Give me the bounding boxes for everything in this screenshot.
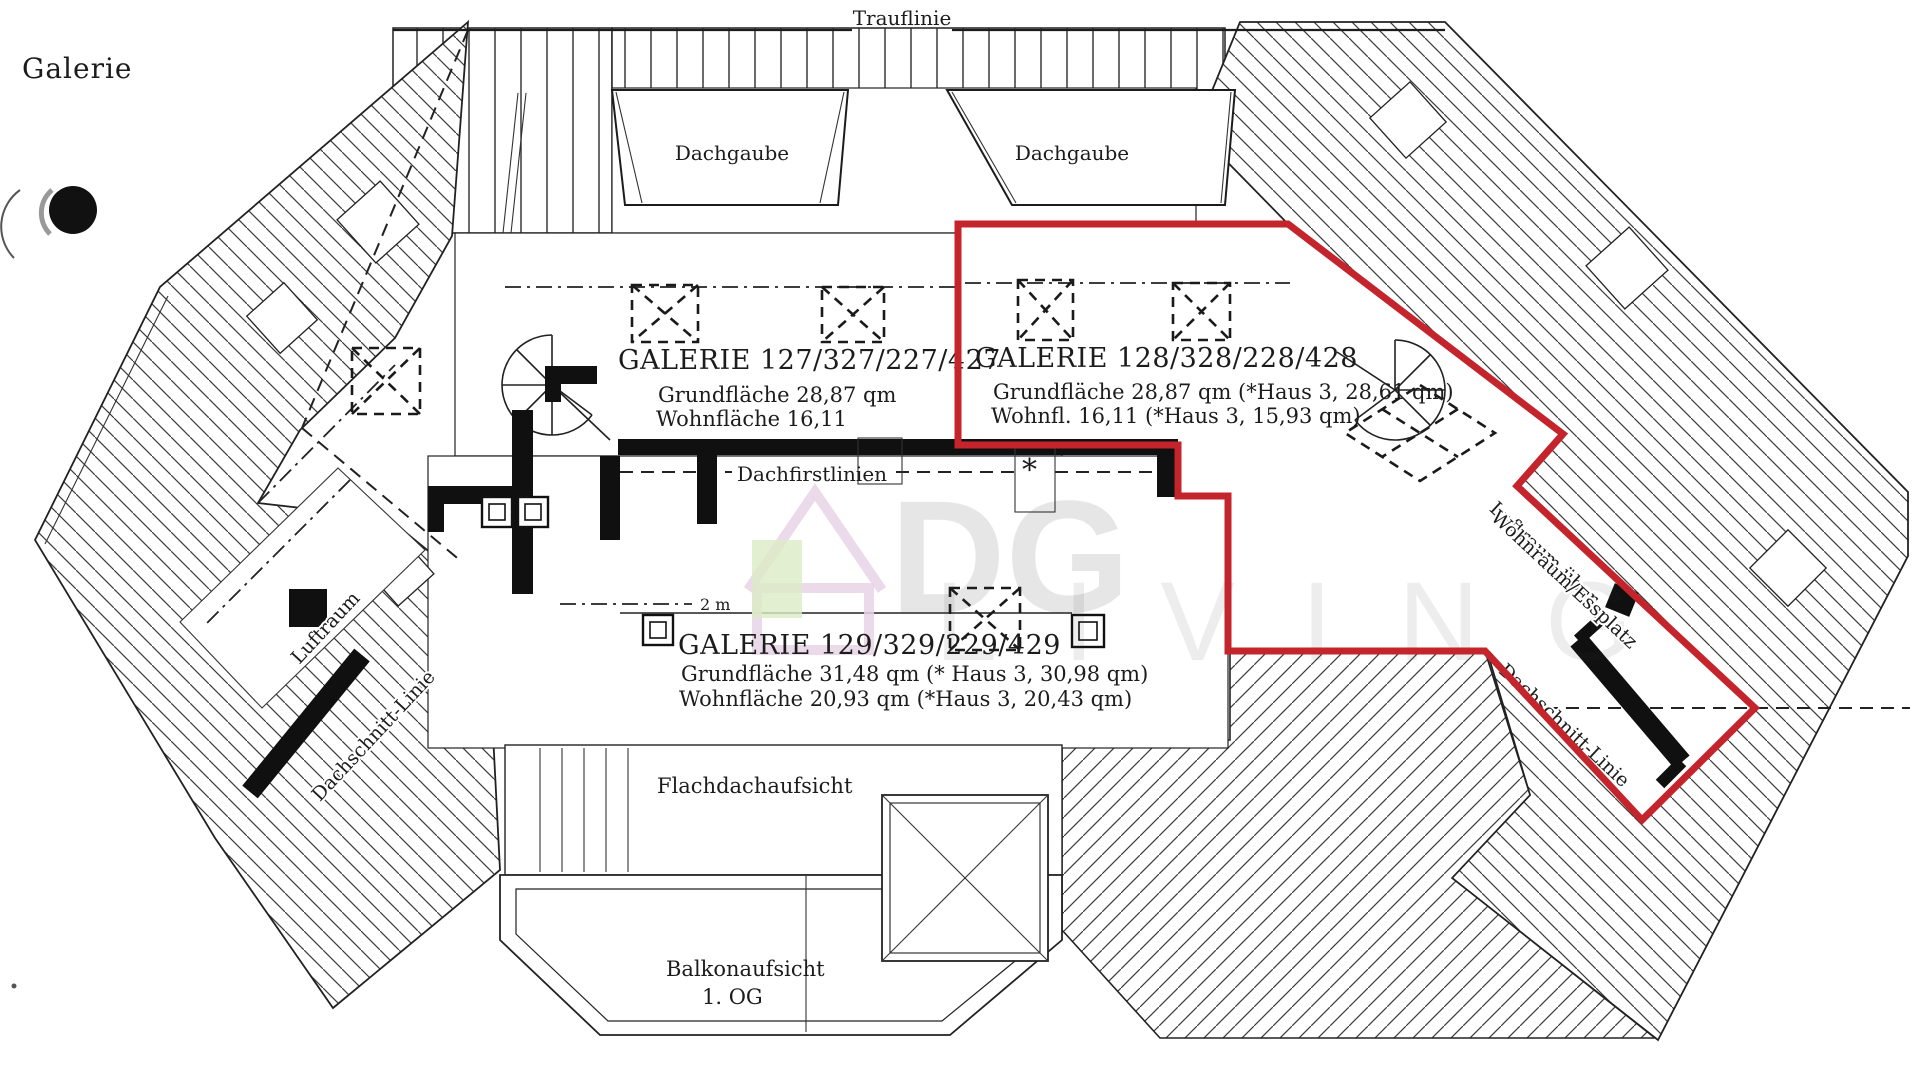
scale-label: 2 m	[700, 595, 730, 614]
floor-plan-svg: DG LIVING Galerie Trauflinie Dachgaube D…	[0, 0, 1920, 1067]
ridge-label: Dachfirstlinien	[737, 462, 887, 486]
balcony-label-line2: 1. OG	[702, 985, 763, 1009]
asterisk-mark: *	[1022, 453, 1037, 488]
post	[518, 497, 548, 527]
unit-127-name: GALERIE 127/327/227/427	[618, 345, 1001, 376]
flat-roof-label: Flachdachaufsicht	[657, 774, 853, 798]
unit-128-living: Wohnfl. 16,11 (*Haus 3, 15,93 qm)	[991, 404, 1361, 428]
trauflinie-label: Trauflinie	[853, 6, 952, 30]
unit-127-living: Wohnfläche 16,11	[656, 407, 847, 431]
unit-129-name: GALERIE 129/329/229/429	[678, 630, 1061, 661]
unit-129-area: Grundfläche 31,48 qm (* Haus 3, 30,98 qm…	[681, 662, 1148, 686]
balcony-label-line1: Balkonaufsicht	[666, 957, 825, 981]
unit-128-area: Grundfläche 28,87 qm (*Haus 3, 28,61 qm)	[993, 380, 1454, 404]
unit-127-area: Grundfläche 28,87 qm	[658, 383, 896, 407]
unit-128-name: GALERIE 128/328/228/428	[975, 343, 1358, 374]
pyramid-skylight	[882, 795, 1048, 961]
page-title: Galerie	[22, 52, 133, 85]
dormer-2-label: Dachgaube	[1015, 141, 1129, 165]
floor-plan-page: DG LIVING Galerie Trauflinie Dachgaube D…	[0, 0, 1920, 1067]
dormer-1-label: Dachgaube	[675, 141, 789, 165]
unit-129-living: Wohnfläche 20,93 qm (*Haus 3, 20,43 qm)	[679, 687, 1132, 711]
post	[643, 615, 673, 645]
post	[482, 497, 512, 527]
